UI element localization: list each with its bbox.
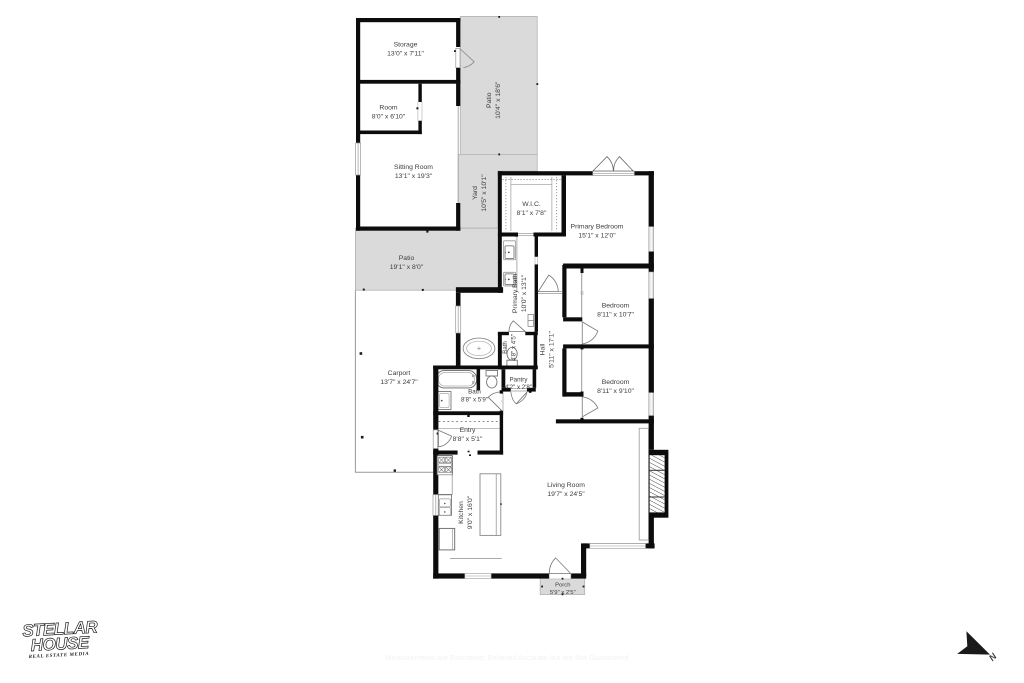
svg-text:8'0" x 6'10": 8'0" x 6'10" [372, 114, 406, 121]
svg-text:5'9" x 2'5": 5'9" x 2'5" [550, 590, 576, 596]
svg-text:Primary Bath: Primary Bath [512, 274, 519, 314]
svg-text:Living Room: Living Room [547, 482, 585, 489]
svg-text:13'1" x 19'3": 13'1" x 19'3" [395, 173, 433, 180]
svg-text:Room: Room [379, 105, 397, 112]
svg-text:10'4" x 18'6": 10'4" x 18'6" [495, 81, 502, 119]
svg-text:Bath: Bath [502, 341, 509, 354]
svg-text:15'1" x 12'0": 15'1" x 12'0" [578, 233, 616, 240]
svg-text:Kitchen: Kitchen [458, 501, 465, 524]
svg-text:Bedroom: Bedroom [602, 303, 630, 310]
svg-text:Patio: Patio [486, 92, 493, 108]
svg-text:Carport: Carport [388, 370, 411, 377]
svg-text:13'0" x 7'11": 13'0" x 7'11" [387, 51, 424, 58]
svg-text:Entry: Entry [460, 427, 476, 434]
svg-text:W.I.C.: W.I.C. [522, 201, 541, 208]
svg-text:8'11" x 10'7": 8'11" x 10'7" [597, 312, 634, 319]
svg-text:4'8" x 4'5": 4'8" x 4'5" [510, 334, 517, 361]
svg-text:8'11" x 9'10": 8'11" x 9'10" [597, 388, 634, 395]
svg-text:8'8" x 5'9": 8'8" x 5'9" [461, 397, 488, 404]
svg-text:10'5" x 10'1": 10'5" x 10'1" [481, 174, 488, 212]
svg-text:Sitting Room: Sitting Room [394, 164, 433, 171]
svg-text:Pantry: Pantry [510, 377, 529, 384]
svg-text:Yard: Yard [472, 186, 479, 200]
svg-text:10'0" x 13'1": 10'0" x 13'1" [521, 274, 528, 312]
svg-text:Primary Bedroom: Primary Bedroom [571, 224, 624, 231]
svg-text:5'11" x 17'1": 5'11" x 17'1" [548, 331, 555, 368]
svg-text:4'2" x 2'8": 4'2" x 2'8" [505, 384, 532, 391]
svg-text:Patio: Patio [399, 255, 415, 262]
svg-text:19'1" x 8'0": 19'1" x 8'0" [390, 264, 424, 271]
svg-text:13'7" x 24'7": 13'7" x 24'7" [380, 379, 418, 386]
svg-text:19'7" x 24'5": 19'7" x 24'5" [547, 491, 585, 498]
svg-text:Bedroom: Bedroom [602, 379, 630, 386]
svg-text:Storage: Storage [394, 42, 418, 49]
svg-text:Measurements are Estimated, Be: Measurements are Estimated, Believed Acc… [385, 653, 628, 662]
svg-text:9'0" x 16'0": 9'0" x 16'0" [467, 495, 474, 529]
svg-text:Bath: Bath [468, 389, 481, 396]
svg-text:Porch: Porch [555, 583, 570, 589]
svg-text:8'1" x 7'8": 8'1" x 7'8" [517, 210, 547, 217]
svg-text:8'8" x 5'1": 8'8" x 5'1" [453, 436, 483, 443]
svg-text:Hall: Hall [539, 343, 546, 355]
